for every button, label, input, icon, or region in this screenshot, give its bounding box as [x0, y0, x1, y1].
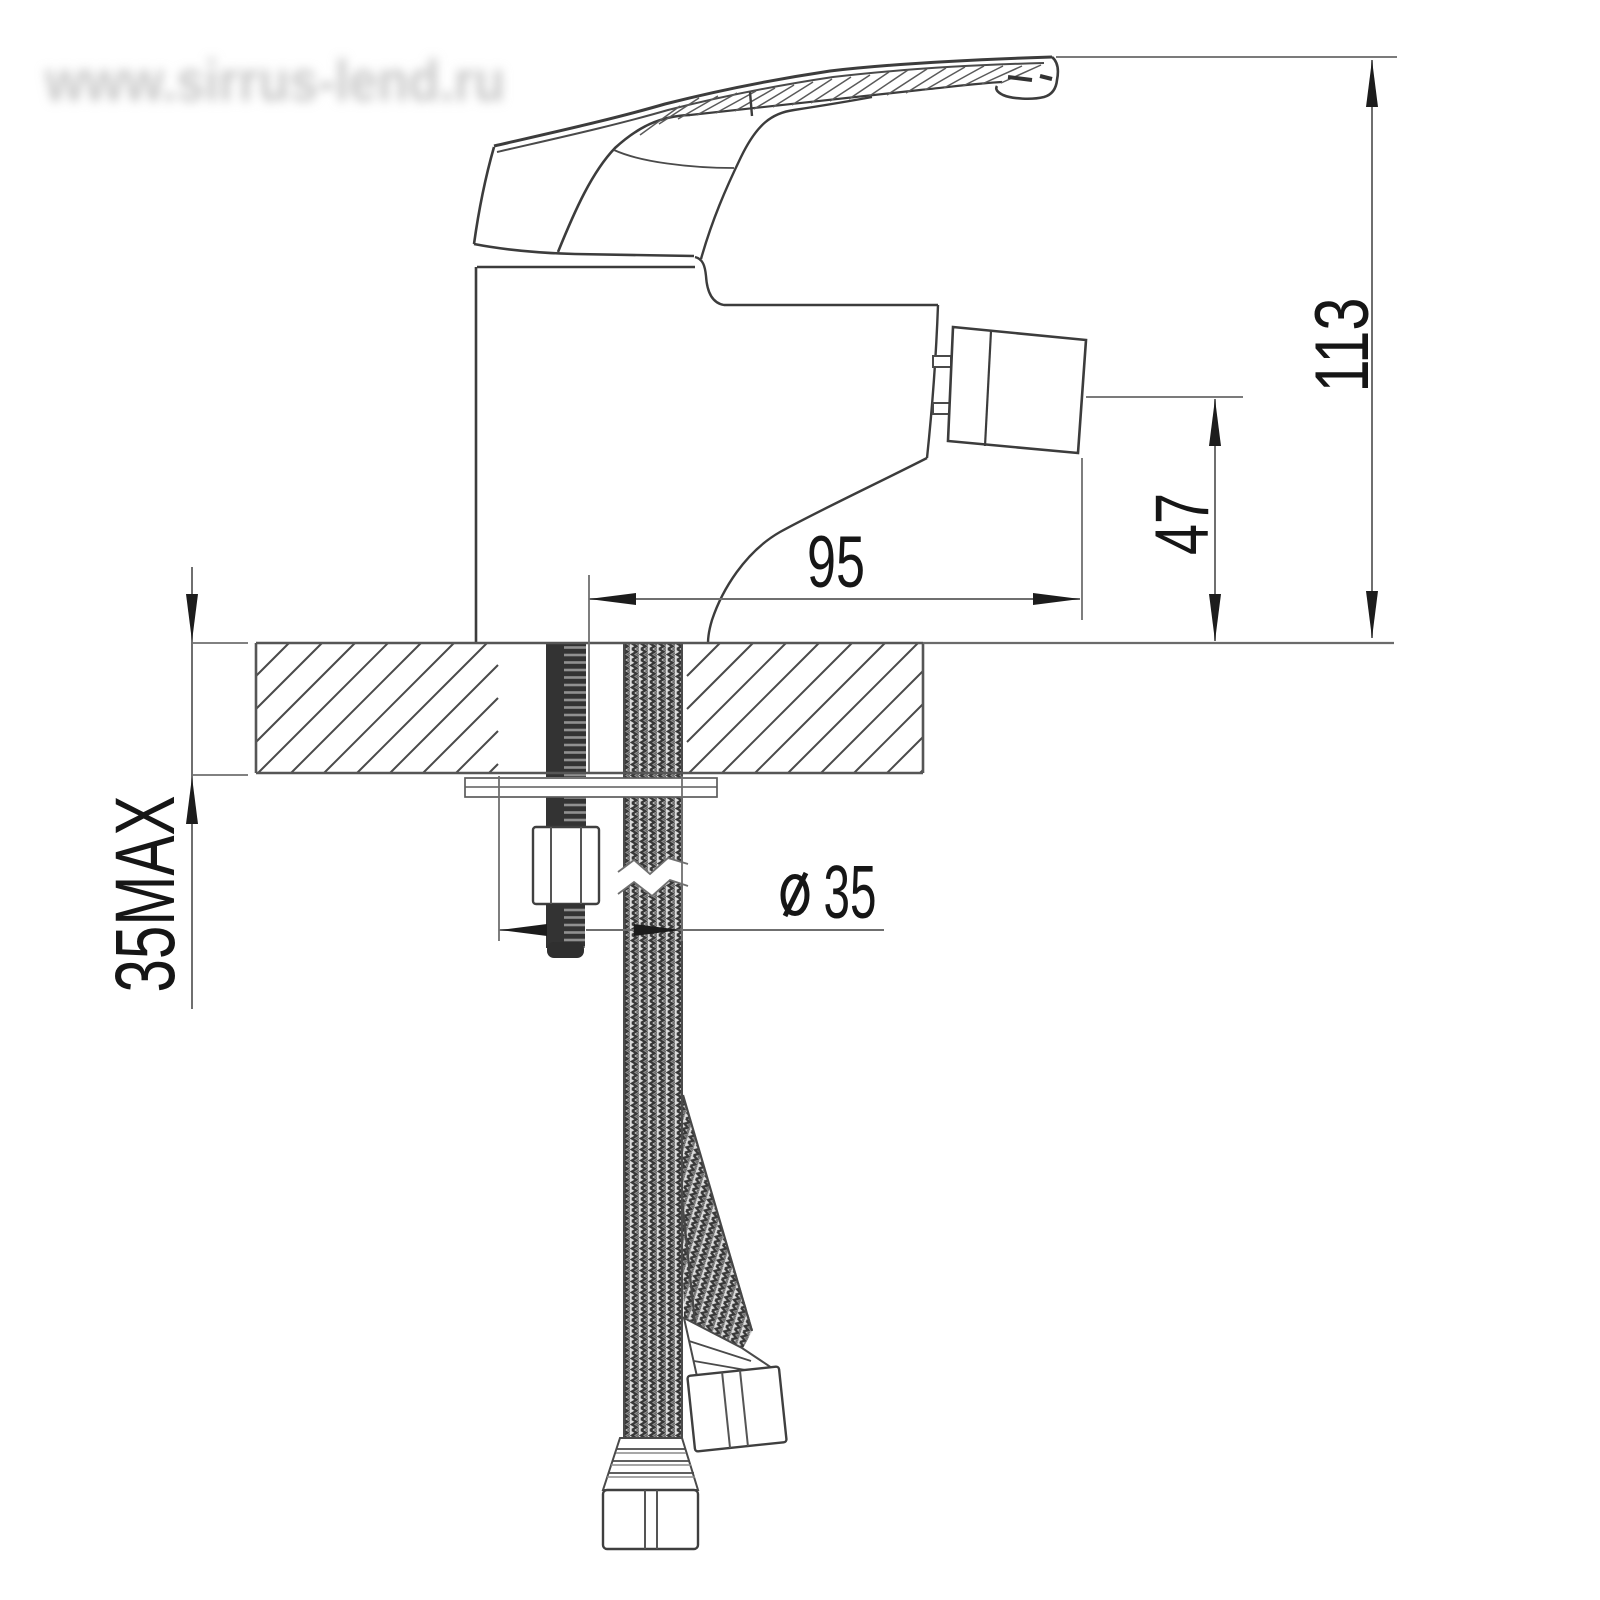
svg-text:95: 95 — [807, 522, 865, 603]
svg-text:47: 47 — [1140, 493, 1225, 555]
svg-text:113: 113 — [1300, 298, 1385, 393]
svg-text:35: 35 — [824, 850, 877, 934]
svg-text:35MAX: 35MAX — [98, 796, 192, 993]
svg-text:www.sirrus-lend.ru: www.sirrus-lend.ru — [44, 49, 505, 114]
